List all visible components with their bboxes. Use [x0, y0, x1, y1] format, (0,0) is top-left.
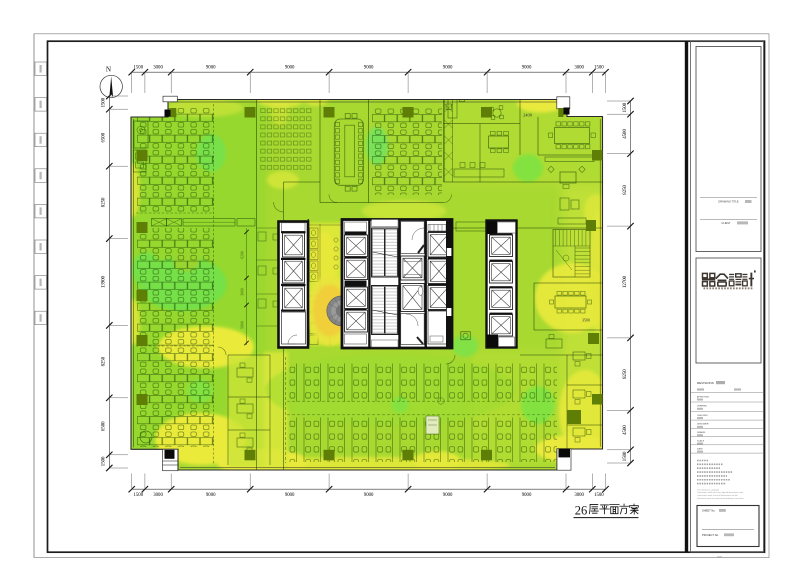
svg-text:1500: 1500 — [134, 65, 144, 70]
svg-text:1500: 1500 — [102, 456, 107, 466]
svg-text:DESIGNER: DESIGNER — [697, 424, 709, 426]
svg-text:Omissions must be reported imm: Omissions must be reported immediately t… — [697, 497, 744, 500]
svg-text:3500: 3500 — [582, 318, 590, 323]
svg-text:1500: 1500 — [134, 493, 144, 498]
svg-text:9000: 9000 — [443, 65, 453, 70]
svg-text:1500: 1500 — [594, 65, 604, 70]
svg-text:3000: 3000 — [153, 65, 163, 70]
svg-text:1500: 1500 — [623, 451, 628, 461]
svg-text:SHEET No.: SHEET No. — [702, 509, 716, 513]
svg-text:9000: 9000 — [364, 493, 374, 498]
svg-text:Contractors shall work from fi: Contractors shall work from figured dime… — [697, 491, 743, 494]
svg-text:SCALE: SCALE — [697, 439, 705, 442]
svg-text:1500: 1500 — [102, 97, 107, 107]
svg-text:9000: 9000 — [285, 493, 295, 498]
svg-text:Contractors must check all dim: Contractors must check all dimensions on… — [697, 494, 739, 497]
svg-text:5000: 5000 — [241, 321, 245, 329]
svg-text:8250: 8250 — [623, 369, 628, 379]
svg-text:9000: 9000 — [522, 493, 532, 498]
svg-text:REVISIONS: REVISIONS — [697, 381, 714, 385]
svg-text:9000: 9000 — [522, 65, 532, 70]
svg-text:9000: 9000 — [364, 65, 374, 70]
svg-text:1500: 1500 — [623, 102, 628, 112]
svg-text:3000: 3000 — [574, 65, 584, 70]
svg-text:2400: 2400 — [523, 113, 533, 118]
svg-text:8250: 8250 — [102, 356, 107, 366]
svg-text:DRAWING TITLE: DRAWING TITLE — [718, 200, 738, 204]
svg-text:DATE: DATE — [697, 447, 703, 450]
svg-text:26: 26 — [575, 504, 588, 518]
svg-text:6500: 6500 — [102, 132, 107, 142]
svg-text:3000: 3000 — [153, 493, 163, 498]
svg-text:APPROVED: APPROVED — [697, 395, 710, 398]
svg-text:4500: 4500 — [623, 425, 628, 435]
svg-text:1500: 1500 — [594, 493, 604, 498]
svg-text:8250: 8250 — [102, 197, 107, 207]
svg-text:PROJECT No.: PROJECT No. — [702, 533, 719, 537]
svg-text:9000: 9000 — [443, 493, 453, 498]
svg-text:DRAWN: DRAWN — [697, 431, 706, 434]
svg-text:VERIFIED: VERIFIED — [697, 406, 708, 408]
svg-text:13900: 13900 — [102, 275, 107, 288]
svg-text:6500: 6500 — [102, 421, 107, 431]
svg-text:N: N — [106, 66, 112, 74]
svg-text:CLIENT: CLIENT — [721, 221, 731, 225]
svg-text:8250: 8250 — [623, 185, 628, 195]
svg-text:4500: 4500 — [623, 129, 628, 139]
svg-text:9000: 9000 — [285, 65, 295, 70]
svg-text:12700: 12700 — [623, 275, 628, 288]
svg-text:3000: 3000 — [241, 288, 245, 296]
svg-text:6200: 6200 — [241, 251, 245, 259]
svg-text:CHECKED: CHECKED — [697, 415, 708, 417]
svg-text:9000: 9000 — [206, 493, 216, 498]
svg-text:This drawing is copyright: This drawing is copyright — [697, 488, 719, 491]
svg-text:3000: 3000 — [574, 493, 584, 498]
svg-text:9000: 9000 — [206, 65, 216, 70]
